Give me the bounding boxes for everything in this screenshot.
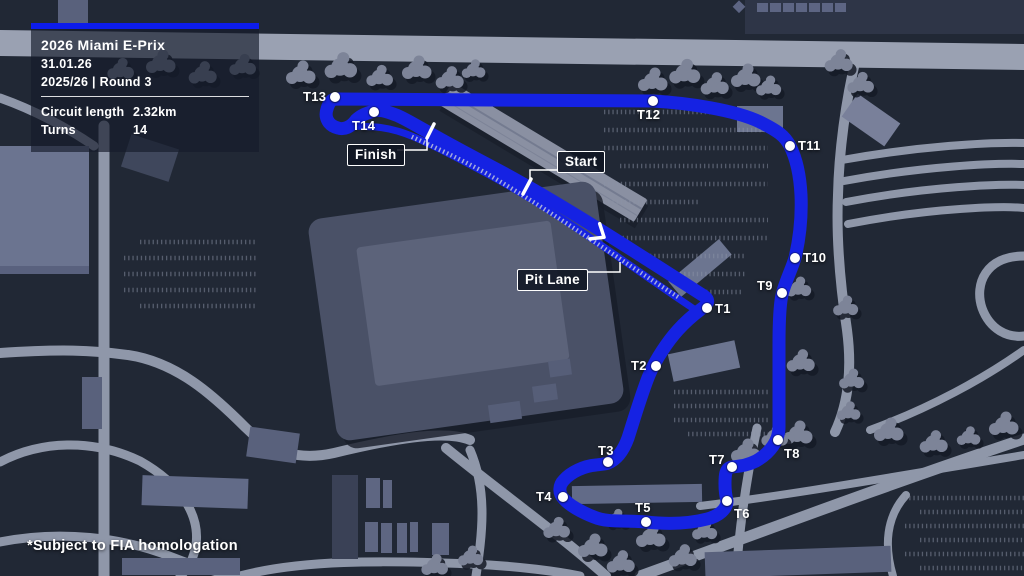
turn-label-T1: T1 bbox=[715, 301, 731, 316]
turn-marker-T13 bbox=[330, 92, 340, 102]
turn-marker-T11 bbox=[785, 141, 795, 151]
broadcast-graphic: 2026 Miami E-Prix 31.01.26 2025/26 | Rou… bbox=[0, 0, 1024, 576]
homologation-footnote: *Subject to FIA homologation bbox=[27, 538, 238, 554]
turn-label-T2: T2 bbox=[631, 358, 647, 373]
turn-label-T11: T11 bbox=[798, 138, 821, 153]
turn-marker-T10 bbox=[790, 253, 800, 263]
turn-label-T12: T12 bbox=[637, 107, 660, 122]
turn-label-T5: T5 bbox=[635, 500, 651, 515]
turn-marker-T3 bbox=[603, 457, 613, 467]
turn-marker-T9 bbox=[777, 288, 787, 298]
turn-marker-T1 bbox=[702, 303, 712, 313]
turn-label-T8: T8 bbox=[784, 446, 800, 461]
turn-marker-T2 bbox=[651, 361, 661, 371]
turn-label-T4: T4 bbox=[536, 489, 552, 504]
turn-marker-T14 bbox=[369, 107, 379, 117]
turn-marker-T5 bbox=[641, 517, 651, 527]
turns-layer: T1T2T3T4T5T6T7T8T9T10T11T12T13T14 bbox=[0, 0, 1024, 576]
turn-label-T14: T14 bbox=[352, 118, 375, 133]
turn-label-T13: T13 bbox=[303, 89, 326, 104]
turn-label-T6: T6 bbox=[734, 506, 750, 521]
turn-marker-T4 bbox=[558, 492, 568, 502]
turn-marker-T7 bbox=[727, 462, 737, 472]
turn-marker-T8 bbox=[773, 435, 783, 445]
turn-marker-T12 bbox=[648, 96, 658, 106]
turn-label-T9: T9 bbox=[757, 278, 773, 293]
turn-marker-T6 bbox=[722, 496, 732, 506]
turn-label-T10: T10 bbox=[803, 250, 826, 265]
turn-label-T3: T3 bbox=[598, 443, 614, 458]
turn-label-T7: T7 bbox=[709, 452, 725, 467]
